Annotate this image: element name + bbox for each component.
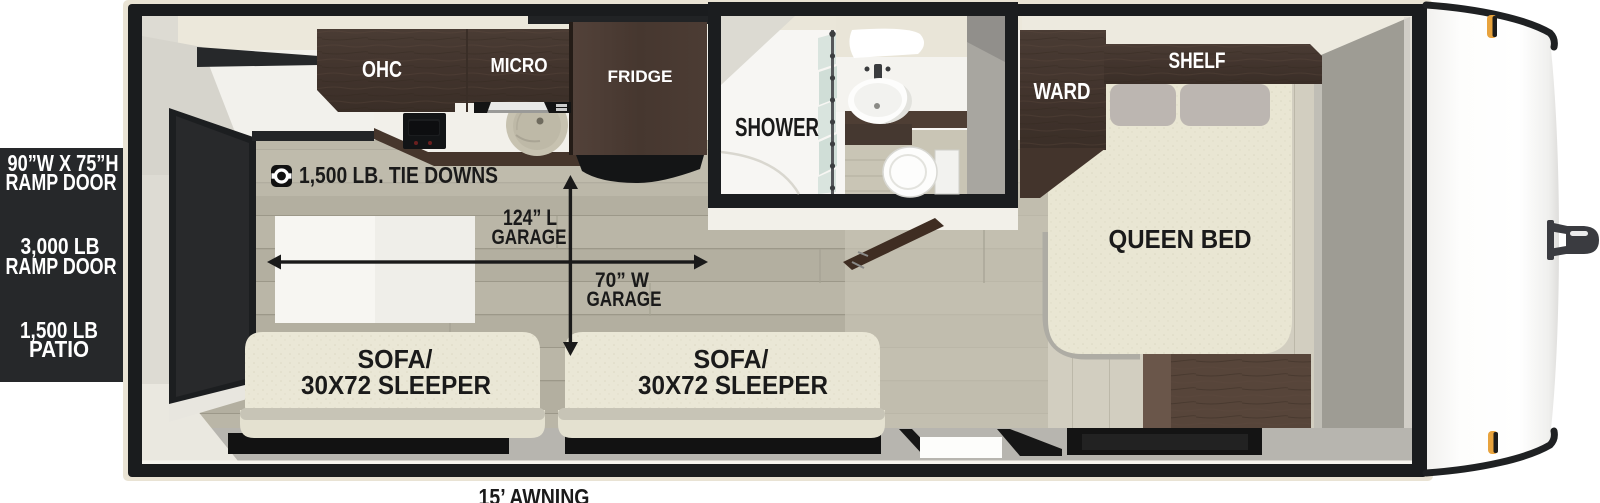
svg-text:MICRO: MICRO bbox=[491, 55, 548, 77]
svg-text:PATIO: PATIO bbox=[29, 336, 89, 362]
svg-text:SHOWER: SHOWER bbox=[735, 112, 819, 142]
svg-text:FRIDGE: FRIDGE bbox=[608, 67, 673, 86]
svg-text:RAMP DOOR: RAMP DOOR bbox=[6, 253, 117, 279]
svg-text:GARAGE: GARAGE bbox=[587, 288, 662, 311]
svg-text:OHC: OHC bbox=[362, 56, 402, 82]
svg-text:RAMP DOOR: RAMP DOOR bbox=[6, 169, 117, 195]
svg-text:15’ AWNING: 15’ AWNING bbox=[479, 484, 590, 503]
svg-text:1,500 LB. TIE DOWNS: 1,500 LB. TIE DOWNS bbox=[299, 162, 498, 188]
svg-text:30X72 SLEEPER: 30X72 SLEEPER bbox=[301, 370, 491, 400]
svg-text:GARAGE: GARAGE bbox=[492, 226, 567, 249]
svg-text:30X72 SLEEPER: 30X72 SLEEPER bbox=[638, 370, 828, 400]
svg-text:SHELF: SHELF bbox=[1169, 48, 1226, 73]
svg-text:QUEEN BED: QUEEN BED bbox=[1109, 224, 1252, 254]
svg-text:WARD: WARD bbox=[1034, 78, 1091, 104]
